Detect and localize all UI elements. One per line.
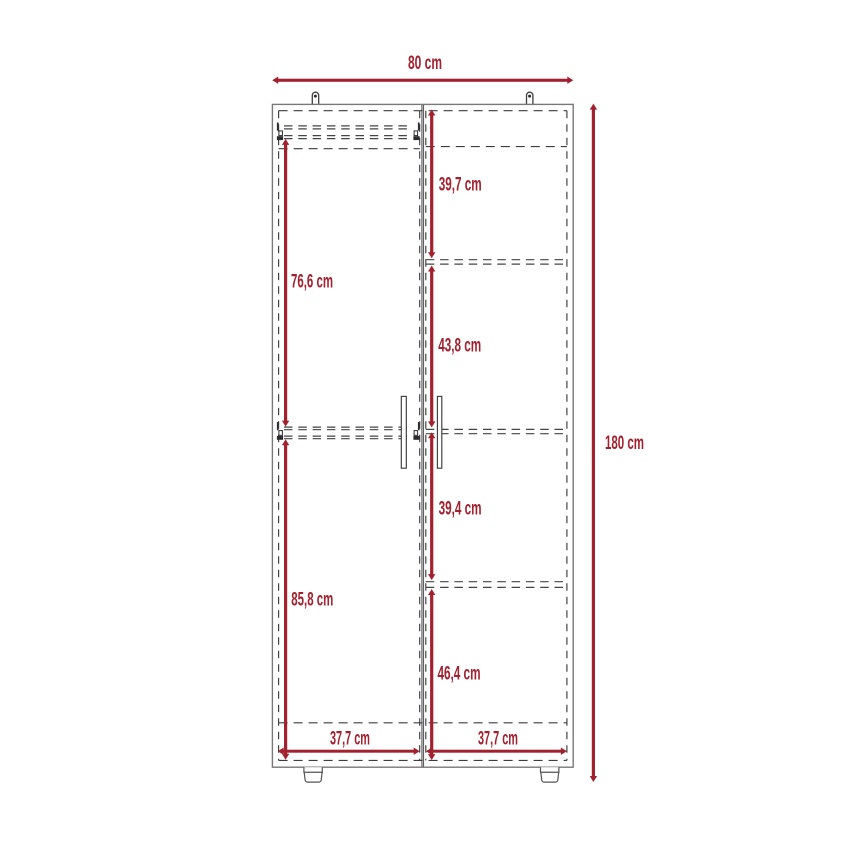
svg-text:39,7 cm: 39,7 cm [439,174,482,196]
svg-text:76,6 cm: 76,6 cm [291,271,333,293]
svg-text:43,8 cm: 43,8 cm [438,335,481,357]
svg-text:37,7 cm: 37,7 cm [478,727,518,749]
svg-text:80 cm: 80 cm [408,52,442,74]
svg-text:180 cm: 180 cm [605,432,644,454]
svg-text:39,4 cm: 39,4 cm [439,497,482,519]
svg-text:46,4 cm: 46,4 cm [438,663,481,685]
svg-text:85,8 cm: 85,8 cm [291,588,333,610]
svg-text:37,7 cm: 37,7 cm [330,727,370,749]
